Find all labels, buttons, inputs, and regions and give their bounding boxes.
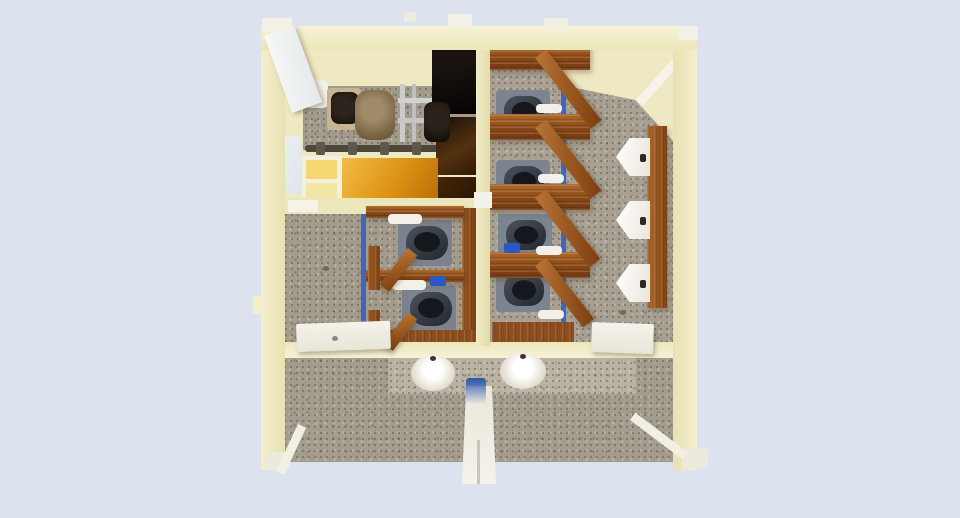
roof-tab-n2 <box>448 14 472 26</box>
urinal-screen-board <box>647 126 667 308</box>
left-wall-tab <box>253 296 265 314</box>
left-exterior-wall <box>261 30 285 470</box>
equip-pipe-vertical-2 <box>412 84 416 142</box>
wall-trim-utility <box>288 200 318 212</box>
pipe-fitting-1 <box>316 142 325 155</box>
right-exterior-wall <box>673 34 697 470</box>
mens-waste-bin <box>504 243 520 253</box>
pipe-fitting-3 <box>380 142 389 155</box>
mens-toilet-3-bowl <box>514 226 538 244</box>
urinal-2-flush-valve <box>640 217 646 225</box>
womens-waste-bin <box>430 276 446 286</box>
equip-water-tank <box>355 90 395 140</box>
urinal-3-flush-valve <box>640 280 646 288</box>
pipe-fitting-4 <box>412 142 421 155</box>
mens-wood-floor-strip <box>492 322 574 342</box>
top-exterior-wall <box>261 26 697 50</box>
pipe-fitting-2 <box>348 142 357 155</box>
center-wall-trim-mid <box>474 192 492 208</box>
roof-tab-n1 <box>404 12 416 22</box>
urinal-1-flush-valve <box>640 154 646 162</box>
mens-floor-drain <box>620 310 626 315</box>
womens-toilet-1-bowl <box>414 232 440 252</box>
womens-entry-door-open <box>296 321 391 352</box>
porch-divider-seam <box>477 440 480 484</box>
mens-tank-lid-2 <box>538 174 564 183</box>
womens-floor-drain <box>323 266 329 271</box>
roof-tab-nw <box>262 18 292 32</box>
womens-stall-back-wall <box>462 208 476 346</box>
mens-tank-lid-3 <box>536 246 562 255</box>
mens-tank-lid-4 <box>538 310 564 319</box>
floorplan-canvas <box>0 0 960 518</box>
porch-divider-blue-mark <box>466 378 486 404</box>
storage-cubby-top <box>306 160 337 179</box>
equip-unit-black <box>424 102 450 142</box>
mens-entry-door-open <box>591 322 654 354</box>
wash-basin-left-drain <box>430 356 436 361</box>
womens-tank-lid-1 <box>388 214 422 224</box>
equip-pipe-vertical-1 <box>400 84 405 142</box>
womens-toilet-2-bowl <box>418 298 444 318</box>
womens-door-jamb-1 <box>368 246 380 290</box>
center-dividing-wall <box>476 36 490 346</box>
roof-tab-ne <box>678 26 698 40</box>
mens-tank-lid-1 <box>536 104 562 113</box>
wash-basin-right-drain <box>520 354 526 359</box>
mens-toilet-4-bowl <box>512 280 536 300</box>
womens-entry-door-handle <box>332 336 338 341</box>
womens-tank-lid-2 <box>392 280 426 290</box>
roof-tab-n3 <box>544 18 568 30</box>
